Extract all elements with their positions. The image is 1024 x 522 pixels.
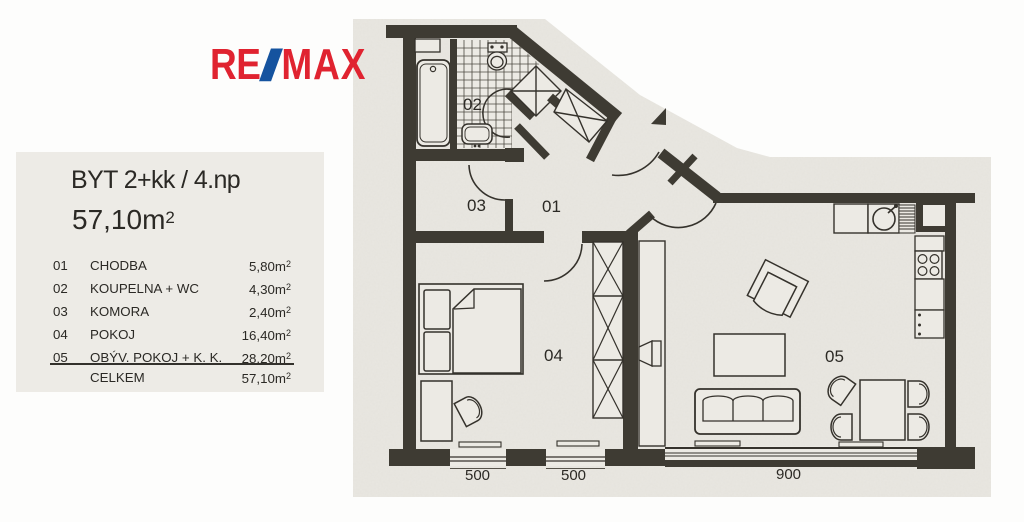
svg-text:01: 01 [542, 197, 561, 216]
svg-text:03: 03 [467, 196, 486, 215]
svg-text:500: 500 [561, 467, 586, 484]
svg-text:05: 05 [825, 347, 844, 366]
svg-text:500: 500 [465, 467, 490, 484]
svg-text:02: 02 [463, 95, 482, 114]
svg-text:04: 04 [544, 346, 563, 365]
svg-text:900: 900 [776, 466, 801, 483]
